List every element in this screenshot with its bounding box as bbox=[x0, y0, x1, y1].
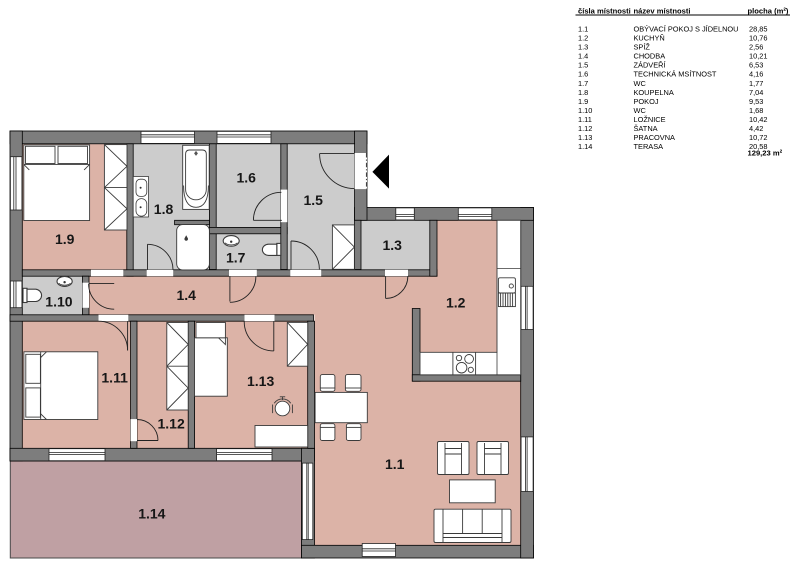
svg-text:1.14: 1.14 bbox=[138, 505, 165, 521]
svg-text:10,72: 10,72 bbox=[749, 133, 768, 142]
svg-text:2,56: 2,56 bbox=[749, 43, 763, 52]
svg-text:název místnosti: název místnosti bbox=[634, 7, 691, 16]
svg-text:WC: WC bbox=[634, 106, 647, 115]
svg-text:1.2: 1.2 bbox=[446, 295, 466, 311]
svg-text:1.12: 1.12 bbox=[158, 416, 185, 432]
svg-text:1.3: 1.3 bbox=[383, 237, 403, 253]
svg-text:KOUPELNA: KOUPELNA bbox=[634, 88, 674, 97]
svg-text:129,23 m²: 129,23 m² bbox=[748, 149, 783, 158]
svg-text:1.11: 1.11 bbox=[578, 115, 592, 124]
svg-text:1.4: 1.4 bbox=[177, 287, 197, 303]
svg-text:1.7: 1.7 bbox=[226, 250, 246, 266]
svg-text:10,76: 10,76 bbox=[749, 34, 768, 43]
svg-text:LOŽNICE: LOŽNICE bbox=[634, 115, 666, 124]
svg-text:9,53: 9,53 bbox=[749, 97, 763, 106]
svg-text:OBÝVACÍ POKOJ S JÍDELNOU: OBÝVACÍ POKOJ S JÍDELNOU bbox=[634, 25, 739, 34]
svg-text:SPÍŽ: SPÍŽ bbox=[634, 43, 651, 52]
svg-text:POKOJ: POKOJ bbox=[634, 97, 659, 106]
svg-text:1.13: 1.13 bbox=[578, 133, 592, 142]
svg-text:10,42: 10,42 bbox=[749, 115, 768, 124]
svg-text:10,21: 10,21 bbox=[749, 52, 768, 61]
svg-text:CHODBA: CHODBA bbox=[634, 52, 666, 61]
svg-text:1.5: 1.5 bbox=[304, 192, 324, 208]
svg-text:1.1: 1.1 bbox=[385, 456, 405, 472]
svg-text:1.6: 1.6 bbox=[237, 169, 257, 185]
svg-text:1.11: 1.11 bbox=[101, 370, 128, 386]
svg-text:KUCHYŇ: KUCHYŇ bbox=[634, 34, 665, 43]
svg-text:1.5: 1.5 bbox=[578, 61, 588, 70]
svg-text:4,42: 4,42 bbox=[749, 124, 763, 133]
svg-text:1.6: 1.6 bbox=[578, 70, 588, 79]
svg-text:1.8: 1.8 bbox=[154, 201, 174, 217]
svg-text:TERASA: TERASA bbox=[634, 142, 664, 151]
svg-text:ZÁDVEŘÍ: ZÁDVEŘÍ bbox=[634, 61, 667, 70]
svg-text:1.7: 1.7 bbox=[578, 79, 588, 88]
svg-text:7,04: 7,04 bbox=[749, 88, 763, 97]
svg-text:1.4: 1.4 bbox=[578, 52, 588, 61]
svg-text:1.1: 1.1 bbox=[578, 25, 588, 34]
svg-text:1.9: 1.9 bbox=[578, 97, 588, 106]
svg-text:PRACOVNA: PRACOVNA bbox=[634, 133, 676, 142]
svg-text:plocha (m²): plocha (m²) bbox=[748, 7, 789, 16]
svg-text:1.10: 1.10 bbox=[578, 106, 592, 115]
svg-text:28,85: 28,85 bbox=[749, 25, 768, 34]
svg-text:WC: WC bbox=[634, 79, 647, 88]
svg-text:1.8: 1.8 bbox=[578, 88, 588, 97]
svg-text:čísla místnosti: čísla místnosti bbox=[578, 7, 631, 16]
svg-text:6,53: 6,53 bbox=[749, 61, 763, 70]
svg-text:1.13: 1.13 bbox=[247, 373, 274, 389]
svg-text:1.14: 1.14 bbox=[578, 142, 592, 151]
svg-text:1.9: 1.9 bbox=[55, 231, 75, 247]
svg-text:4,16: 4,16 bbox=[749, 70, 763, 79]
svg-text:1.3: 1.3 bbox=[578, 43, 588, 52]
svg-text:1.12: 1.12 bbox=[578, 124, 592, 133]
svg-text:ŠATNA: ŠATNA bbox=[634, 124, 658, 133]
svg-text:TECHNICKÁ MSÍTNOST: TECHNICKÁ MSÍTNOST bbox=[634, 70, 717, 79]
svg-text:1,77: 1,77 bbox=[749, 79, 763, 88]
svg-text:1,68: 1,68 bbox=[749, 106, 763, 115]
svg-text:1.10: 1.10 bbox=[45, 294, 72, 310]
svg-text:1.2: 1.2 bbox=[578, 34, 588, 43]
